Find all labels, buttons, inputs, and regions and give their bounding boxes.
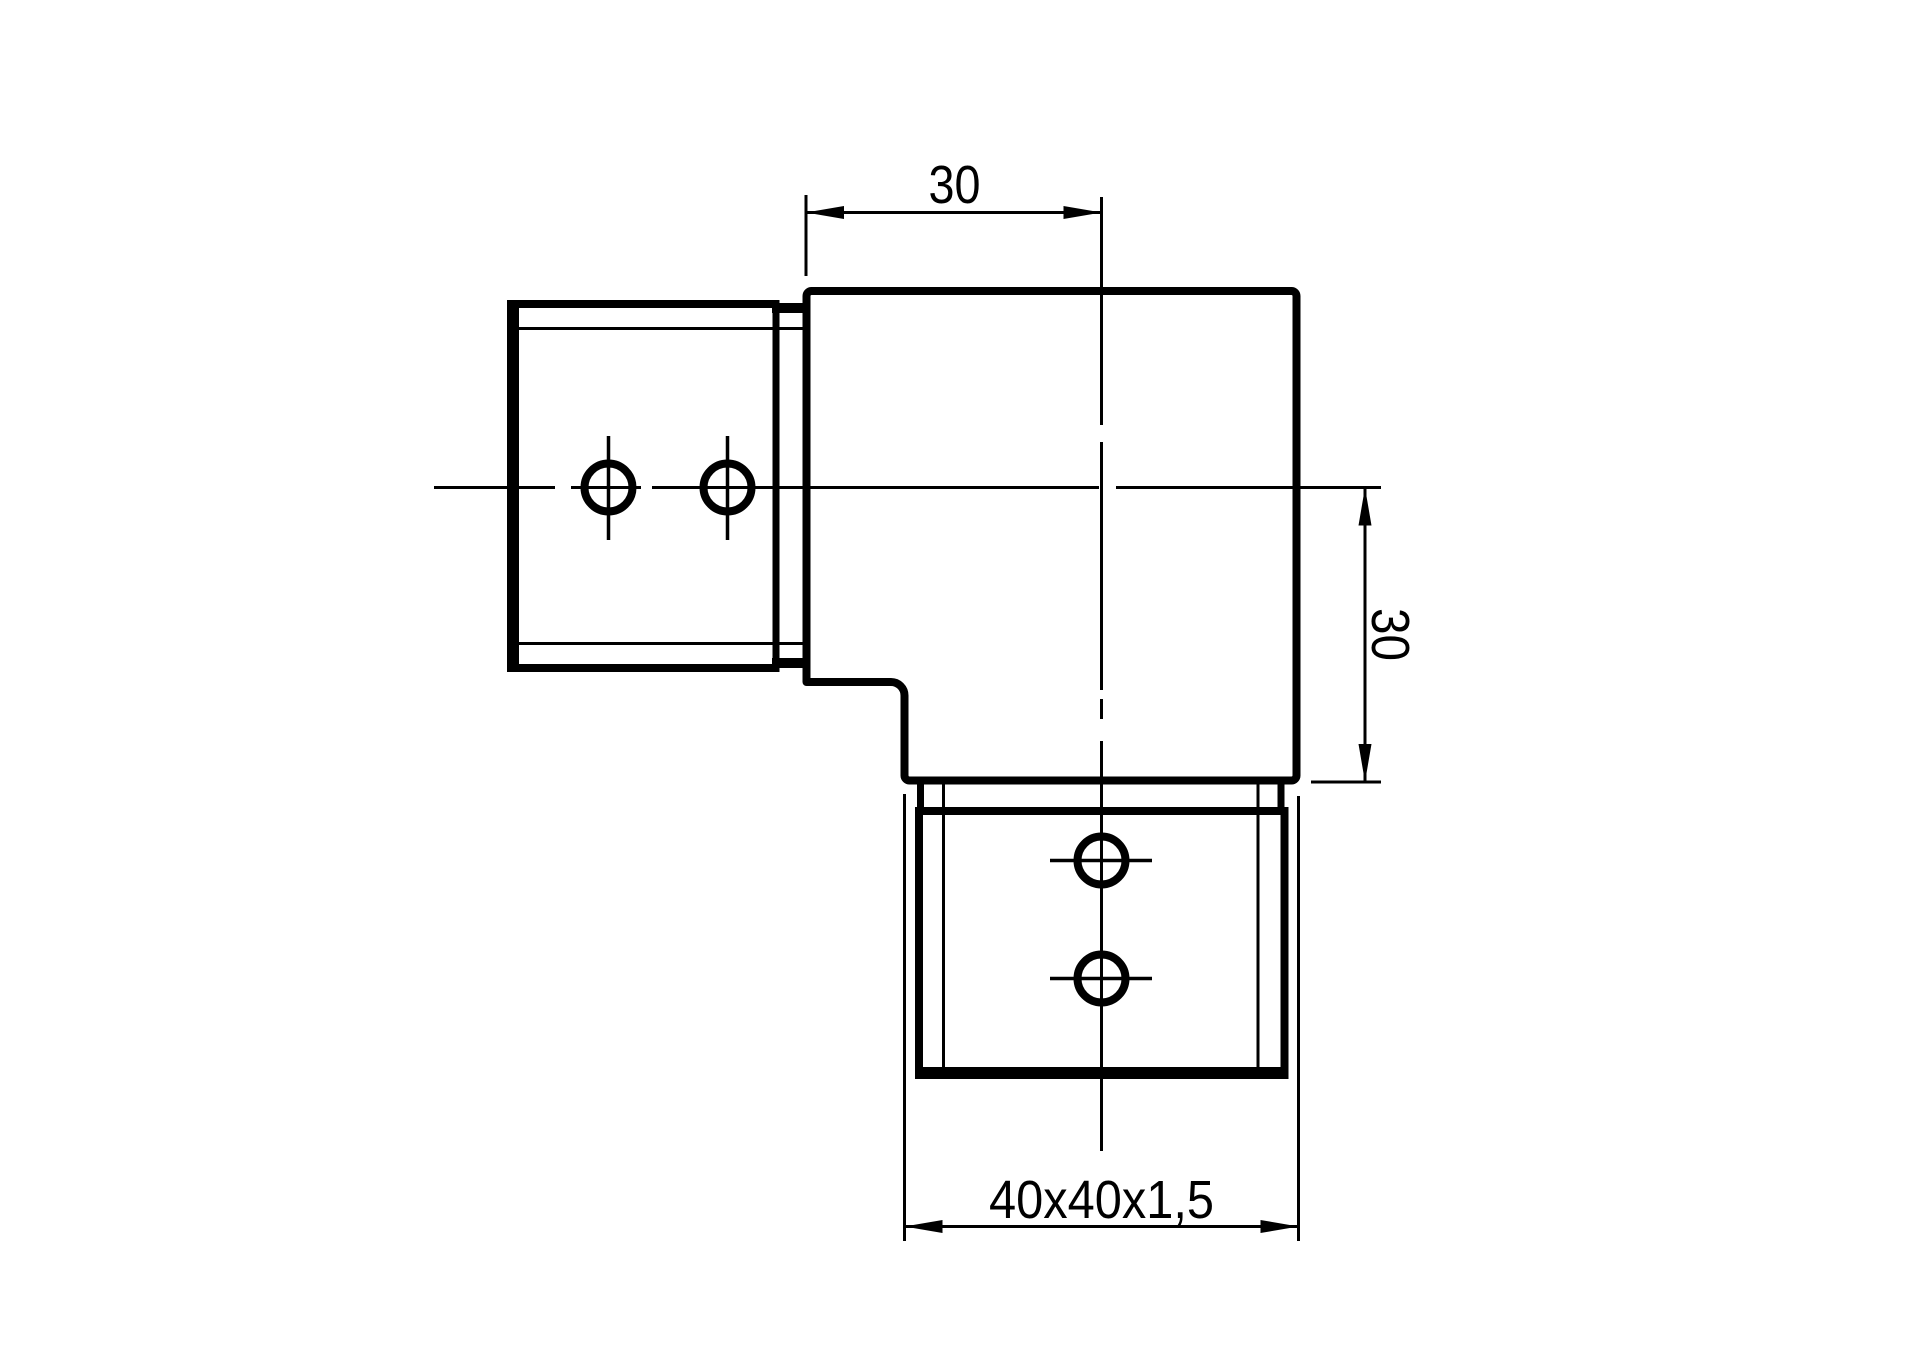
svg-text:30: 30 xyxy=(1360,608,1420,661)
svg-text:40x40x1,5: 40x40x1,5 xyxy=(989,1170,1214,1230)
svg-text:30: 30 xyxy=(929,155,981,215)
